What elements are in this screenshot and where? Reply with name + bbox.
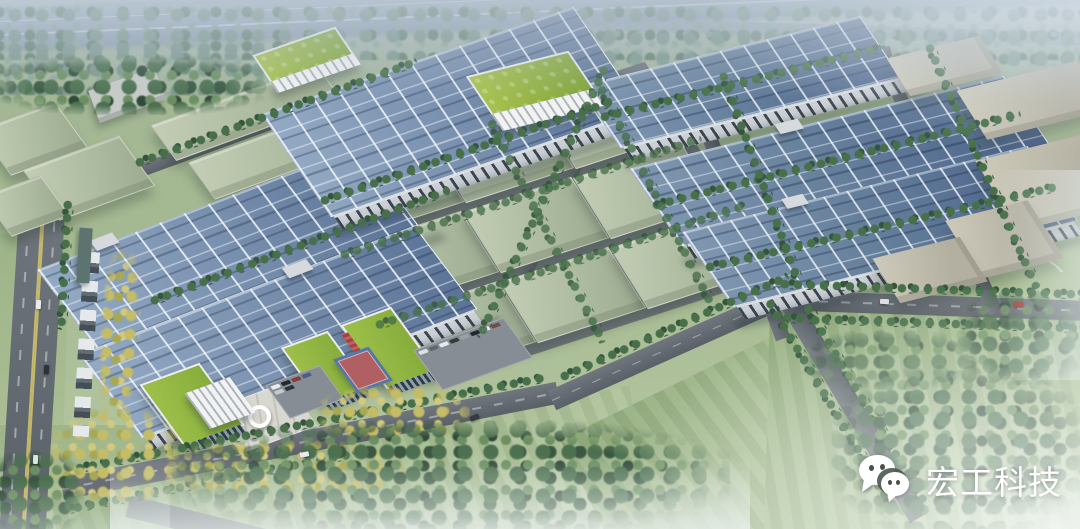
car: [33, 455, 38, 464]
brand-text: 宏工科技: [926, 456, 1062, 504]
car: [44, 365, 49, 374]
bottom-left-mist: [0, 480, 170, 529]
industrial-park-aerial-rendering: 宏工科技: [0, 0, 1080, 529]
watermark: 宏工科技: [859, 455, 1062, 505]
top-right-haze: [700, 0, 1080, 150]
car: [36, 300, 41, 309]
wechat-bubble-small: [881, 472, 909, 496]
bottom-mist: [110, 455, 750, 529]
wechat-icon: [859, 455, 913, 505]
right-edge-mist: [1000, 170, 1080, 380]
